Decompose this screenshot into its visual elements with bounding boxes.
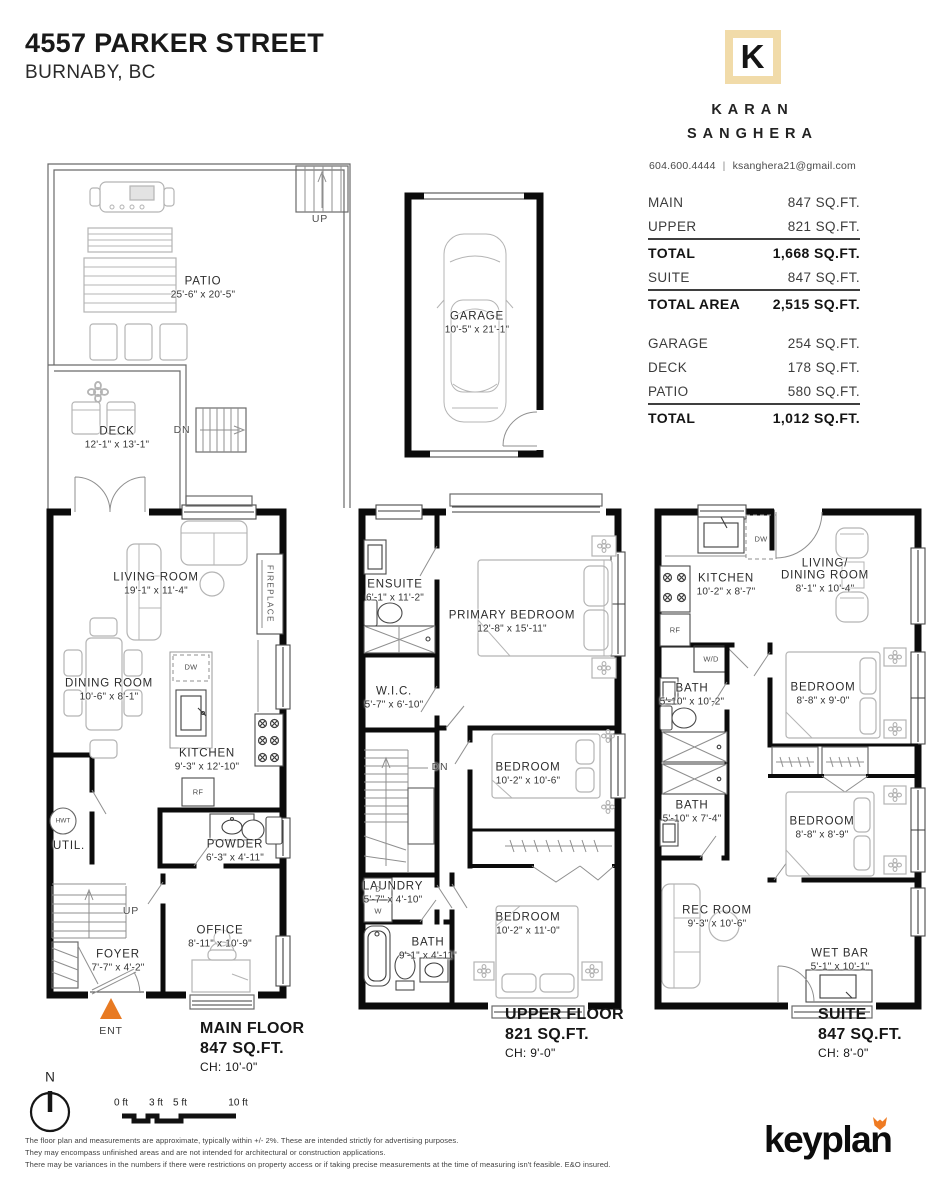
- room-label-bath1-suite: BATH 5'-10" x 10'-2": [660, 683, 725, 708]
- up-marker-patio: UP: [312, 213, 328, 225]
- scale-tick-0: 0 ft: [114, 1098, 128, 1109]
- up-marker-main: UP: [123, 905, 139, 917]
- table-row-garage: GARAGE 254 SQ.FT.: [648, 331, 860, 355]
- agent-last-name: SANGHERA: [640, 123, 865, 147]
- agent-email: ksanghera21@gmail.com: [733, 160, 856, 172]
- room-label-wet-bar: WET BAR 5'-1" x 10'-1": [811, 948, 870, 973]
- dishwasher-label-main: DW: [185, 663, 198, 672]
- table-row-deck: DECK 178 SQ.FT.: [648, 355, 860, 379]
- agent-block: K KARAN SANGHERA 604.600.4444|ksanghera2…: [640, 30, 865, 172]
- disclaimer: The floor plan and measurements are appr…: [25, 1135, 625, 1171]
- property-address: 4557 PARKER STREET: [25, 28, 324, 59]
- fridge-label-main: RF: [193, 788, 203, 797]
- row-label: SUITE: [648, 270, 690, 285]
- room-label-patio: PATIO 25'-6" x 20'-5": [171, 276, 236, 301]
- agent-logo-initial: K: [741, 38, 765, 76]
- washer-label: W: [374, 907, 381, 916]
- room-label-bedroom-mid: BEDROOM 10'-2" x 10'-6": [495, 762, 560, 787]
- room-label-living-dining: LIVING/ DINING ROOM 8'-1" x 10'-4": [781, 558, 869, 595]
- room-label-bath2-suite: BATH 5'-10" x 7'-4": [663, 800, 722, 825]
- row-label: PATIO: [648, 384, 689, 399]
- row-label: MAIN: [648, 195, 683, 210]
- north-arrow: [31, 1091, 69, 1131]
- fox-icon: [872, 1117, 888, 1131]
- row-value: 178 SQ.FT.: [788, 360, 860, 375]
- room-label-bedroom-bottom: BEDROOM 10'-2" x 11'-0": [495, 912, 560, 937]
- dn-marker-upper: DN: [432, 761, 449, 773]
- floorplan-page: 4557 PARKER STREET BURNABY, BC K KARAN S…: [0, 0, 927, 1200]
- table-row-total: TOTAL 1,668 SQ.FT.: [648, 240, 860, 265]
- table-row-upper: UPPER 821 SQ.FT.: [648, 214, 860, 238]
- floor-label-suite: SUITE 847 SQ.FT. CH: 8'-0": [818, 1005, 902, 1061]
- row-label: TOTAL: [648, 410, 695, 426]
- row-label: GARAGE: [648, 336, 708, 351]
- row-value: 2,515 SQ.FT.: [773, 296, 860, 312]
- room-label-wic: W.I.C. 5'-7" x 6'-10": [365, 686, 424, 711]
- table-row-suite: SUITE 847 SQ.FT.: [648, 265, 860, 289]
- table-row-patio: PATIO 580 SQ.FT.: [648, 379, 860, 403]
- row-value: 847 SQ.FT.: [788, 270, 860, 285]
- scale-tick-3: 3 ft: [149, 1098, 163, 1109]
- north-label: N: [45, 1070, 55, 1085]
- room-label-foyer: FOYER 7'-7" x 4'-2": [92, 949, 145, 974]
- agent-name: KARAN SANGHERA: [640, 99, 865, 147]
- disclaimer-line-3: There may be variances in the numbers if…: [25, 1159, 625, 1171]
- scale-bar-icon: [122, 1116, 236, 1121]
- fridge-label-suite: RF: [670, 626, 680, 635]
- patio-deck-drawing: [48, 164, 350, 510]
- room-label-deck: DECK 12'-1" x 13'-1": [85, 426, 150, 451]
- agent-logo: K: [725, 30, 781, 84]
- agent-first-name: KARAN: [640, 99, 865, 123]
- room-label-kitchen-suite: KITCHEN 10'-2" x 8'-7": [697, 573, 756, 598]
- row-value: 580 SQ.FT.: [788, 384, 860, 399]
- room-label-bath-upper: BATH 9'-1" x 4'-11": [399, 937, 457, 962]
- row-label: TOTAL AREA: [648, 296, 740, 312]
- contact-separator: |: [716, 160, 733, 172]
- room-label-util: UTIL.: [53, 840, 85, 852]
- scale-tick-10: 10 ft: [228, 1098, 247, 1109]
- property-city: BURNABY, BC: [25, 62, 324, 84]
- agent-phone: 604.600.4444: [649, 160, 716, 172]
- washer-dryer-label-suite: W/D: [703, 655, 718, 664]
- room-label-garage: GARAGE 10'-5" x 21'-1": [445, 311, 510, 336]
- room-label-living: LIVING ROOM 19'-1" x 11'-4": [113, 572, 198, 597]
- row-value: 1,012 SQ.FT.: [773, 410, 860, 426]
- room-label-powder: POWDER 6'-3" x 4'-11": [206, 839, 264, 864]
- fireplace-label: FIREPLACE: [266, 565, 275, 623]
- room-label-primary-bedroom: PRIMARY BEDROOM 12'-8" x 15'-11": [449, 610, 576, 635]
- room-label-bedroom1-suite: BEDROOM 8'-8" x 9'-0": [790, 682, 855, 707]
- row-value: 821 SQ.FT.: [788, 219, 860, 234]
- floor-label-upper: UPPER FLOOR 821 SQ.FT. CH: 9'-0": [505, 1005, 624, 1061]
- row-label: TOTAL: [648, 245, 695, 261]
- agent-contact: 604.600.4444|ksanghera21@gmail.com: [640, 160, 865, 172]
- room-label-bedroom2-suite: BEDROOM 8'-8" x 8'-9": [789, 816, 854, 841]
- table-gap: [648, 316, 860, 331]
- floorplan-drawing: [0, 0, 927, 1200]
- row-value: 847 SQ.FT.: [788, 195, 860, 210]
- dryer-label: D: [375, 885, 381, 894]
- table-row-outdoor-total: TOTAL 1,012 SQ.FT.: [648, 405, 860, 430]
- row-value: 254 SQ.FT.: [788, 336, 860, 351]
- room-label-rec-room: REC ROOM 9'-3" x 10'-6": [682, 905, 752, 930]
- header: 4557 PARKER STREET BURNABY, BC: [25, 28, 324, 84]
- disclaimer-line-1: The floor plan and measurements are appr…: [25, 1135, 625, 1147]
- row-label: DECK: [648, 360, 687, 375]
- room-label-dining: DINING ROOM 10'-6" x 8'-1": [65, 678, 153, 703]
- table-row-main: MAIN 847 SQ.FT.: [648, 190, 860, 214]
- room-label-laundry: LAUNDRY 5'-7" x 4'-10": [363, 881, 423, 906]
- dn-marker-deck: DN: [174, 424, 191, 436]
- room-label-office: OFFICE 8'-11" x 10'-9": [188, 925, 252, 950]
- table-row-total-area: TOTAL AREA 2,515 SQ.FT.: [648, 291, 860, 316]
- room-label-ensuite: ENSUITE 6'-1" x 11'-2": [366, 579, 424, 604]
- room-label-kitchen-main: KITCHEN 9'-3" x 12'-10": [175, 748, 240, 773]
- main-floor-drawing: [50, 477, 290, 1019]
- hwt-label: HWT: [56, 818, 71, 825]
- row-label: UPPER: [648, 219, 697, 234]
- dishwasher-label-suite: DW: [755, 535, 768, 544]
- row-value: 1,668 SQ.FT.: [773, 245, 860, 261]
- floor-label-main: MAIN FLOOR 847 SQ.FT. CH: 10'-0": [200, 1019, 304, 1075]
- disclaimer-line-2: They may encompass unfinished areas and …: [25, 1147, 625, 1159]
- area-table: MAIN 847 SQ.FT. UPPER 821 SQ.FT. TOTAL 1…: [648, 190, 860, 430]
- scale-tick-5: 5 ft: [173, 1098, 187, 1109]
- entry-label: ENT: [99, 1025, 122, 1037]
